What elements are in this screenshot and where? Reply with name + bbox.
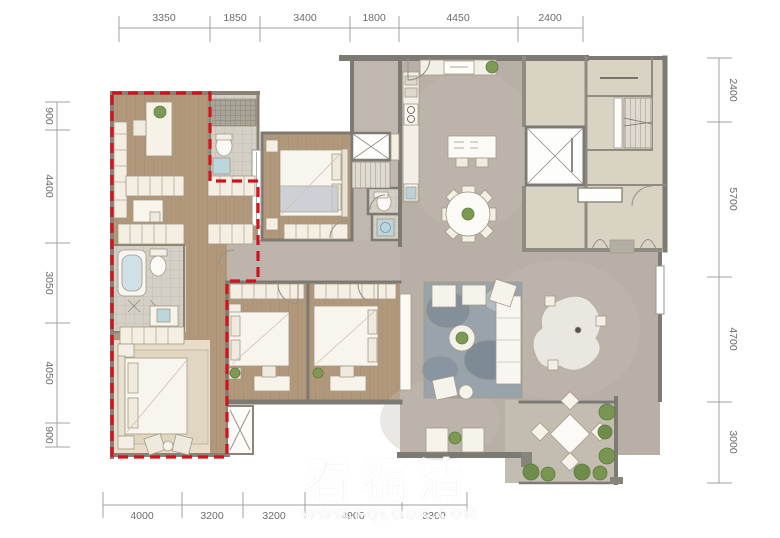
dim-left-2: 4400 <box>43 174 55 198</box>
plant-icon <box>462 208 474 220</box>
plant-icon <box>449 432 461 444</box>
plant-icon <box>154 106 166 118</box>
dim-left-3: 3050 <box>43 271 55 295</box>
dim-top-5: 4450 <box>446 12 470 24</box>
dim-left-5: 900 <box>43 426 55 444</box>
shower-icon <box>212 99 256 126</box>
dim-top-1: 3350 <box>152 12 176 24</box>
armchair <box>432 285 456 307</box>
floorplan-screenshot: 3350 1850 3400 1800 4450 2400 900 4400 3… <box>0 0 780 538</box>
sink-icon <box>213 158 230 174</box>
dim-left-1: 900 <box>43 107 55 125</box>
plant-icon <box>456 332 468 344</box>
dim-top-2: 1850 <box>223 12 247 24</box>
dim-top-4: 1800 <box>362 12 386 24</box>
dim-right-2: 5700 <box>727 187 739 211</box>
island-counter <box>448 136 496 158</box>
toilet-icon <box>150 256 166 276</box>
plant-icon <box>486 61 498 73</box>
dim-top-3: 3400 <box>293 12 317 24</box>
floorplan-drawing: 3350 1850 3400 1800 4450 2400 900 4400 3… <box>0 0 780 538</box>
dim-right-4: 3000 <box>727 430 739 454</box>
plant-icon <box>313 368 323 378</box>
hood-icon <box>444 61 474 74</box>
armchair <box>462 285 486 305</box>
dim-right-1: 2400 <box>727 78 739 102</box>
sink-icon <box>157 309 170 322</box>
dim-bottom-5: 3300 <box>422 510 446 522</box>
hall-floor <box>227 240 400 282</box>
stairs-icon <box>352 162 390 188</box>
plant-icon <box>230 368 240 378</box>
dim-bottom-1: 4000 <box>130 510 154 522</box>
master-bed <box>118 344 208 455</box>
dim-bottom-2: 3200 <box>200 510 224 522</box>
tv-console <box>400 294 411 390</box>
stove-icon <box>404 104 418 125</box>
dim-top-6: 2400 <box>538 12 562 24</box>
dim-left-4: 4050 <box>43 361 55 385</box>
dining-table <box>442 186 496 242</box>
shoe-cabinet <box>391 134 399 160</box>
dim-bottom-4: 4900 <box>341 510 365 522</box>
dim-bottom-3: 3200 <box>262 510 286 522</box>
dim-right-3: 4700 <box>727 327 739 351</box>
washer-icon <box>377 219 394 236</box>
